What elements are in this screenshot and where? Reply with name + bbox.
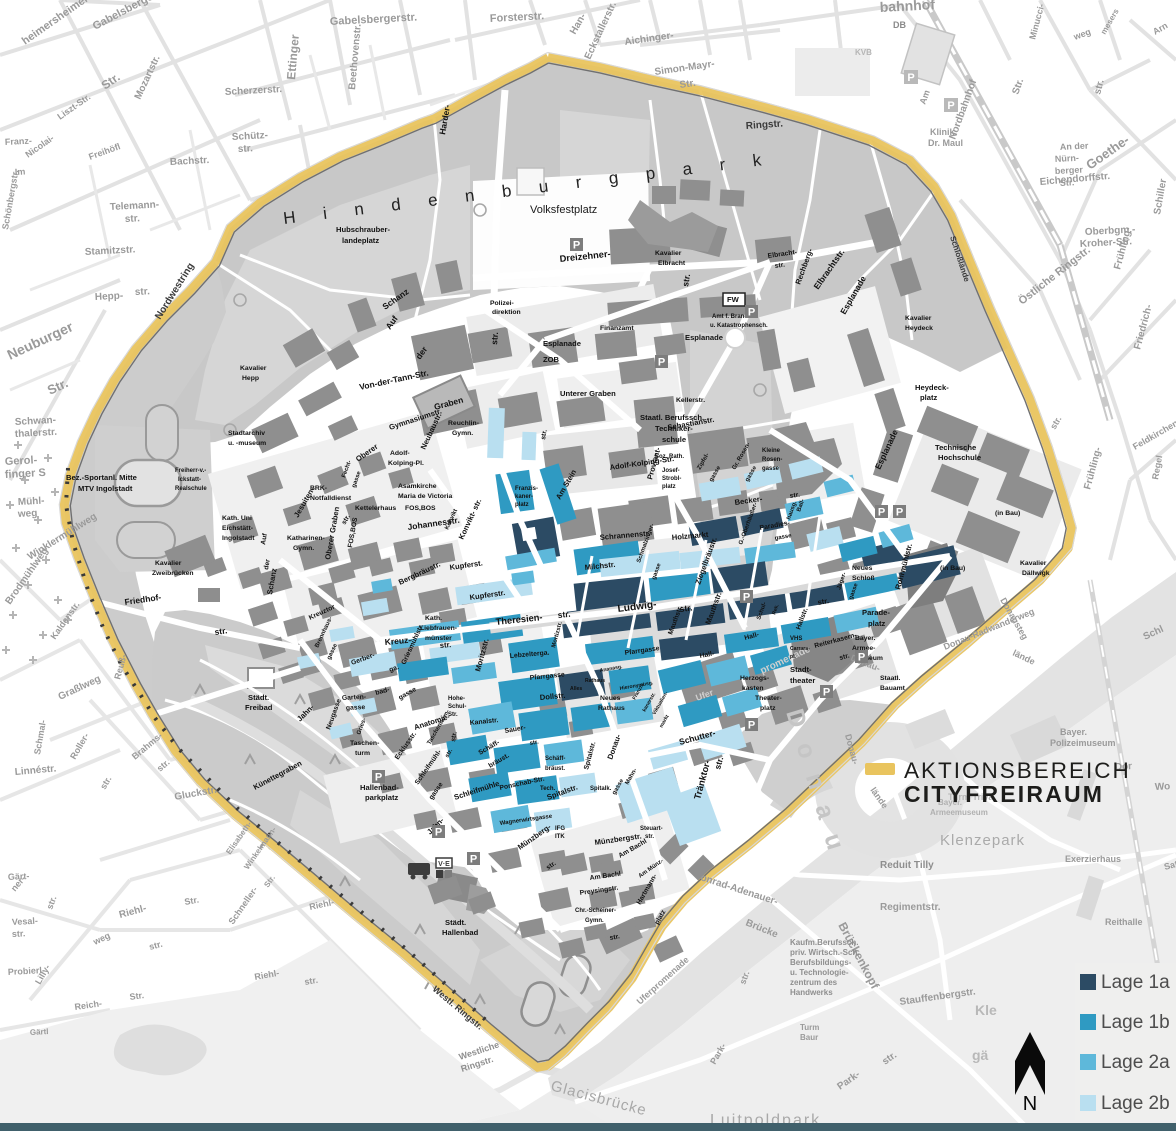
svg-text:Armeemuseum: Armeemuseum — [930, 808, 988, 817]
svg-text:u. Technologie-: u. Technologie- — [790, 968, 849, 977]
svg-text:Gymn.: Gymn. — [585, 918, 604, 924]
svg-text:gasse: gasse — [762, 466, 780, 472]
svg-text:Technische: Technische — [935, 443, 976, 452]
svg-text:Kavalier: Kavalier — [1020, 560, 1047, 567]
svg-text:Steuart-: Steuart- — [640, 826, 663, 832]
svg-text:zentrum des: zentrum des — [790, 978, 838, 987]
svg-text:Stadtarchiv: Stadtarchiv — [228, 430, 265, 437]
svg-text:Klinik: Klinik — [930, 127, 955, 137]
svg-text:Turm: Turm — [800, 1023, 819, 1032]
svg-text:Rathaus: Rathaus — [585, 678, 605, 684]
svg-text:turm: turm — [355, 750, 370, 757]
svg-text:Carrara-: Carrara- — [790, 646, 810, 652]
svg-text:Ickstatt-: Ickstatt- — [178, 477, 201, 483]
svg-text:str.: str. — [774, 262, 785, 270]
svg-text:Spitalk.: Spitalk. — [590, 786, 612, 792]
svg-text:DB: DB — [893, 20, 906, 30]
svg-text:platz: platz — [515, 502, 529, 508]
svg-text:P: P — [470, 854, 477, 866]
svg-text:Polizei-: Polizei- — [490, 300, 514, 307]
svg-text:Mühl-: Mühl- — [18, 496, 45, 508]
svg-text:Dr. Maul: Dr. Maul — [928, 138, 963, 148]
svg-text:Schütz-: Schütz- — [232, 130, 269, 143]
svg-text:str.: str. — [125, 213, 141, 225]
svg-text:Handwerks: Handwerks — [790, 988, 833, 997]
svg-text:Hallenbad: Hallenbad — [442, 928, 479, 937]
svg-text:V·E: V·E — [438, 861, 450, 868]
svg-text:Nürn-: Nürn- — [1055, 153, 1079, 164]
svg-text:MTV Ingolstadt: MTV Ingolstadt — [78, 484, 133, 493]
svg-text:Exerzierhaus: Exerzierhaus — [1065, 854, 1121, 864]
svg-text:landeplatz: landeplatz — [342, 236, 379, 245]
svg-text:Neues: Neues — [600, 695, 621, 702]
svg-text:str.: str. — [645, 834, 654, 840]
svg-text:Schäff-: Schäff- — [545, 756, 565, 762]
svg-text:Kaufm.Berufssch.: Kaufm.Berufssch. — [790, 938, 858, 947]
svg-text:Freiherr-v.-: Freiherr-v.- — [175, 468, 206, 474]
svg-text:bräust.: bräust. — [545, 766, 565, 772]
svg-text:(in Bau): (in Bau) — [940, 565, 965, 572]
svg-text:Neues: Neues — [852, 565, 873, 572]
svg-text:Reuchlin-: Reuchlin- — [448, 420, 479, 427]
svg-text:Bez.-Sportanl. Mitte: Bez.-Sportanl. Mitte — [66, 473, 137, 482]
svg-text:AKTIONSBEREICH: AKTIONSBEREICH — [904, 758, 1131, 783]
svg-text:Alles: Alles — [570, 686, 582, 692]
svg-text:Rathaus: Rathaus — [598, 705, 625, 712]
svg-text:Franzis-: Franzis- — [515, 486, 538, 492]
svg-text:Volksfestplatz: Volksfestplatz — [530, 204, 597, 216]
svg-text:Regimentstr.: Regimentstr. — [880, 902, 941, 913]
svg-text:Kavalier: Kavalier — [155, 560, 182, 567]
svg-text:P: P — [858, 652, 865, 664]
svg-text:Lage 2a: Lage 2a — [1101, 1052, 1170, 1073]
svg-text:Kavalier: Kavalier — [655, 250, 682, 257]
svg-text:Gymn.: Gymn. — [293, 545, 314, 552]
svg-text:str.: str. — [135, 286, 151, 298]
svg-text:Strobl-: Strobl- — [662, 476, 681, 482]
svg-text:Kle: Kle — [975, 1002, 997, 1018]
svg-text:str.: str. — [214, 625, 228, 637]
svg-text:P: P — [748, 720, 755, 732]
svg-text:str.: str. — [789, 492, 800, 500]
svg-text:Str.: Str. — [129, 990, 145, 1002]
svg-text:pl.: pl. — [790, 654, 797, 660]
svg-text:Hepp-: Hepp- — [95, 291, 124, 303]
svg-text:Katharinen-: Katharinen- — [287, 535, 325, 542]
svg-text:N: N — [1023, 1093, 1037, 1115]
svg-text:str.: str. — [557, 609, 571, 620]
svg-text:Kleine: Kleine — [762, 448, 781, 454]
svg-text:P: P — [435, 827, 442, 839]
svg-text:u. Katastrophensch.: u. Katastrophensch. — [710, 323, 768, 329]
svg-text:Reithalle: Reithalle — [1105, 917, 1143, 927]
svg-text:P: P — [947, 100, 954, 112]
svg-text:priv. Wirtsch.-Sch.: priv. Wirtsch.-Sch. — [790, 948, 860, 957]
svg-text:ITK: ITK — [555, 834, 565, 840]
svg-text:Bauamt: Bauamt — [880, 685, 906, 692]
svg-text:Eichstätt-: Eichstätt- — [222, 525, 253, 532]
svg-text:schule: schule — [662, 435, 686, 444]
svg-text:Hallenbad-: Hallenbad- — [360, 783, 399, 792]
svg-text:Hubschrauber-: Hubschrauber- — [336, 225, 390, 234]
svg-text:str.: str. — [439, 640, 451, 650]
svg-text:Städt.: Städt. — [248, 693, 269, 702]
svg-text:(in Bau): (in Bau) — [995, 510, 1020, 517]
svg-text:Str.: Str. — [1060, 177, 1075, 188]
svg-text:platz: platz — [868, 619, 886, 628]
svg-text:Chr.-Scheiner-: Chr.-Scheiner- — [575, 908, 616, 914]
svg-text:P: P — [375, 772, 382, 784]
svg-text:Bachstr.: Bachstr. — [170, 155, 210, 168]
svg-text:Kavalier: Kavalier — [905, 315, 932, 322]
svg-text:Theater-: Theater- — [755, 695, 782, 702]
svg-text:Schul-: Schul- — [448, 704, 466, 710]
svg-text:gä: gä — [972, 1047, 989, 1063]
svg-text:Str.: Str. — [679, 78, 697, 91]
svg-text:IFG: IFG — [555, 826, 565, 832]
svg-text:Städt.: Städt. — [445, 918, 466, 927]
svg-text:Parade-: Parade- — [862, 608, 890, 617]
svg-text:P: P — [907, 72, 914, 84]
svg-text:Esplanade: Esplanade — [543, 339, 581, 348]
svg-text:kasten: kasten — [742, 685, 764, 692]
svg-text:P: P — [823, 687, 830, 699]
svg-text:Lage 1b: Lage 1b — [1101, 1012, 1170, 1033]
svg-text:P: P — [748, 307, 755, 319]
svg-text:Franz-: Franz- — [5, 136, 32, 147]
svg-text:Bayer.: Bayer. — [1060, 727, 1087, 737]
svg-text:P: P — [658, 357, 665, 369]
svg-text:Staatl.: Staatl. — [880, 675, 901, 682]
svg-text:Stadt-: Stadt- — [790, 665, 812, 674]
svg-text:platz: platz — [662, 484, 676, 490]
svg-text:Ingolstadt: Ingolstadt — [222, 535, 255, 542]
svg-text:Liebfrauen-: Liebfrauen- — [420, 625, 457, 632]
svg-text:Wo: Wo — [1155, 781, 1171, 793]
svg-text:Gerol-: Gerol- — [5, 454, 38, 468]
svg-text:Schloß: Schloß — [852, 575, 875, 582]
svg-text:Notfalldienst: Notfalldienst — [310, 495, 352, 502]
svg-text:VHS: VHS — [790, 636, 802, 642]
svg-text:u. -museum: u. -museum — [228, 440, 266, 447]
svg-text:gasse: gasse — [346, 704, 366, 712]
svg-text:Taschen-: Taschen- — [350, 740, 379, 747]
svg-text:Reduit Tilly: Reduit Tilly — [880, 860, 934, 871]
svg-text:CITYFREIRAUM: CITYFREIRAUM — [904, 781, 1104, 807]
svg-text:Hepp: Hepp — [242, 375, 259, 382]
svg-text:finger S: finger S — [5, 467, 47, 481]
svg-text:ZOB: ZOB — [543, 355, 560, 364]
svg-text:Garten-: Garten- — [342, 694, 367, 702]
svg-text:kaner-: kaner- — [515, 494, 533, 500]
svg-text:FW: FW — [727, 295, 740, 304]
svg-text:Kettelerhaus: Kettelerhaus — [355, 505, 396, 512]
svg-text:Schwan-: Schwan- — [15, 415, 57, 428]
svg-text:Kath. Uni: Kath. Uni — [222, 515, 252, 522]
svg-text:Soz. Rath.: Soz. Rath. — [655, 454, 684, 460]
svg-text:Josef-: Josef- — [662, 468, 680, 474]
svg-text:Hohe-: Hohe- — [448, 696, 465, 702]
svg-text:str.: str. — [12, 928, 26, 939]
svg-text:Kellerstr.: Kellerstr. — [676, 397, 705, 404]
svg-text:Polizeimuseum: Polizeimuseum — [1050, 738, 1116, 748]
svg-text:Amt f. Brand-: Amt f. Brand- — [712, 314, 750, 320]
svg-text:parkplatz: parkplatz — [365, 793, 399, 802]
svg-text:Elbracht: Elbracht — [658, 260, 686, 267]
svg-text:direktion: direktion — [492, 309, 521, 316]
svg-text:thalerstr.: thalerstr. — [15, 427, 58, 440]
svg-text:P: P — [896, 507, 903, 519]
svg-text:P: P — [743, 592, 750, 604]
svg-text:Gymn.: Gymn. — [452, 430, 473, 437]
svg-text:Lage 1a: Lage 1a — [1101, 972, 1170, 993]
svg-text:Klenzepark: Klenzepark — [940, 832, 1025, 849]
svg-text:Asamkirche: Asamkirche — [398, 483, 437, 490]
svg-text:P: P — [573, 240, 580, 252]
svg-text:str.: str. — [489, 332, 500, 346]
svg-text:Heydeck: Heydeck — [905, 325, 933, 332]
svg-text:FOS,BOS: FOS,BOS — [405, 505, 436, 512]
svg-text:Adolf-: Adolf- — [390, 450, 410, 457]
svg-text:P: P — [878, 507, 885, 519]
svg-text:Kath.: Kath. — [425, 615, 442, 622]
svg-text:Freibad: Freibad — [245, 703, 273, 712]
svg-text:Zweibrücken: Zweibrücken — [152, 570, 194, 577]
svg-text:Unterer Graben: Unterer Graben — [560, 389, 616, 398]
svg-text:Gärtl: Gärtl — [30, 1027, 49, 1037]
svg-text:theater: theater — [790, 676, 815, 685]
svg-text:Rosen-: Rosen- — [762, 457, 782, 463]
svg-text:Herzogs-: Herzogs- — [740, 675, 769, 682]
svg-text:Heydeck-: Heydeck- — [915, 383, 949, 392]
svg-text:Finanzamt: Finanzamt — [600, 325, 634, 332]
svg-text:An der: An der — [1060, 140, 1089, 152]
svg-text:Bayer.: Bayer. — [855, 635, 876, 642]
svg-text:Dällwigk: Dällwigk — [1022, 570, 1050, 577]
svg-text:berger: berger — [1055, 165, 1084, 176]
svg-text:weg: weg — [17, 508, 38, 520]
svg-text:str.: str. — [238, 143, 254, 155]
svg-text:platz: platz — [920, 393, 938, 402]
svg-text:Lage 2b: Lage 2b — [1101, 1093, 1170, 1114]
svg-text:Realschule: Realschule — [175, 486, 207, 492]
svg-text:Hochschule: Hochschule — [938, 453, 981, 462]
svg-text:Maria de Victoria: Maria de Victoria — [398, 493, 452, 500]
svg-text:Kolping-Pl.: Kolping-Pl. — [388, 460, 424, 467]
svg-text:Baur: Baur — [800, 1033, 818, 1042]
svg-text:Berufsbildungs-: Berufsbildungs- — [790, 958, 852, 967]
svg-text:Kavalier: Kavalier — [240, 365, 267, 372]
svg-text:platz: platz — [760, 705, 776, 712]
svg-text:Esplanade: Esplanade — [685, 333, 723, 342]
svg-text:Vesal-: Vesal- — [12, 916, 39, 927]
svg-text:KVB: KVB — [855, 48, 872, 57]
